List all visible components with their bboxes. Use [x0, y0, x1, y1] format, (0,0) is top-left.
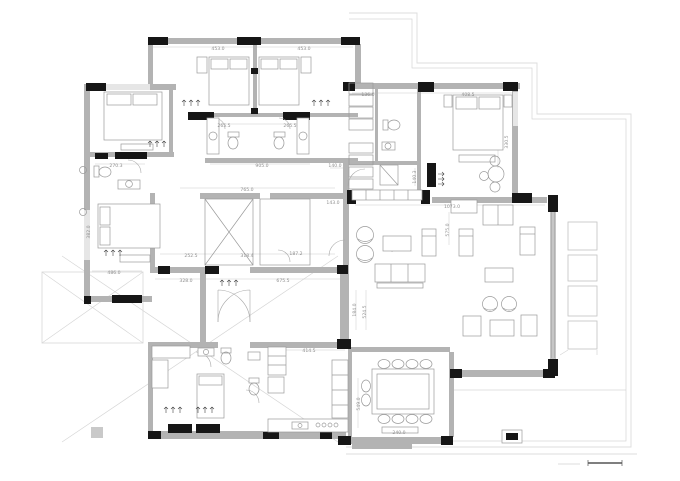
window-band [100, 84, 150, 90]
toilet-icon [228, 137, 238, 149]
dim-label: 486.0 [107, 270, 120, 276]
nightstand-icon [444, 95, 452, 107]
master-closet [349, 83, 373, 189]
dim-label: 330.5 [504, 135, 510, 148]
dim-label: 675.5 [276, 278, 289, 284]
dim-label: 265.5 [217, 123, 230, 129]
dim-label: 265.5 [283, 123, 296, 129]
toilet-icon [249, 383, 259, 395]
kitchen-tall-unit-icon [268, 347, 286, 375]
lounge-chair-icon [520, 227, 535, 255]
nightstand-icon [504, 95, 512, 107]
dim-label: 765.0 [240, 187, 253, 193]
lounge-chair-icon [459, 229, 473, 256]
chair-icon [378, 415, 390, 424]
chair-icon [392, 360, 404, 369]
dim-label: 136.0 [361, 92, 374, 98]
dim-label: 414.5 [302, 348, 315, 354]
dim-label: 187.2 [289, 251, 302, 257]
dim-label: 382.0 [86, 225, 92, 238]
lounge-chair-icon [463, 316, 481, 336]
bedrooms-bottom [152, 346, 260, 418]
dim-label: 318.4 [240, 253, 253, 259]
dining-room-furniture [362, 360, 435, 434]
dim-label: 143.0 [326, 200, 339, 206]
sofa-icon [375, 264, 425, 282]
bench-icon [121, 144, 153, 150]
dim-label: 453.0 [297, 46, 310, 52]
chair-icon [362, 394, 371, 406]
lounger-icon [568, 286, 597, 316]
dim-label: 524.5 [362, 305, 368, 318]
dim-label: 1073.0 [444, 204, 460, 210]
paving-block [91, 427, 103, 438]
toilet-icon [221, 352, 231, 364]
wardrobe-icon [196, 424, 220, 433]
dim-label: 453.0 [211, 46, 224, 52]
chair-icon [420, 415, 432, 424]
bench-icon [120, 255, 150, 262]
chair-icon [362, 380, 371, 392]
lounger-icon [568, 321, 597, 349]
dim-label: 240.0 [392, 430, 405, 436]
armchair-icon [483, 297, 498, 312]
tv-console [352, 190, 422, 200]
dim-label: 252.5 [184, 253, 197, 259]
vanity-icon [248, 352, 260, 360]
dim-label: 270.3 [109, 163, 122, 169]
bench-icon [459, 155, 495, 162]
dim-label: 140.0 [328, 163, 341, 169]
armchair-icon [357, 227, 374, 244]
kitchen-furniture [268, 347, 348, 432]
toilet-icon [274, 137, 284, 149]
chair-icon [406, 360, 418, 369]
fridge-icon [268, 377, 284, 393]
wardrobe-icon [168, 424, 192, 433]
scale-bar [558, 460, 622, 466]
round-table-icon [488, 166, 504, 182]
dim-label: 140.3 [412, 170, 418, 183]
coffee-table-icon [383, 236, 411, 251]
chair-icon [392, 415, 404, 424]
dim-label: 408.5 [461, 92, 474, 98]
toilet-icon [388, 120, 400, 130]
dim-label: 549.0 [356, 397, 362, 410]
kitchen-counter-icon [332, 360, 348, 418]
armchair-icon [357, 246, 374, 263]
armchair-icon [502, 297, 517, 312]
master-bedroom [444, 95, 512, 213]
bedroom-top-left [104, 92, 162, 150]
lounge-chair-icon [422, 229, 436, 256]
dim-label: 328.0 [179, 278, 192, 284]
dim-label: 575.0 [445, 223, 451, 236]
glass-wall [550, 211, 556, 359]
chair-icon [406, 415, 418, 424]
lounger-icon [568, 222, 597, 250]
master-bathroom [380, 120, 400, 185]
dim-label: 905.0 [255, 163, 268, 169]
chair-icon [490, 182, 500, 192]
dining-table-icon [372, 369, 434, 414]
terrace-loungers [560, 222, 597, 355]
coffee-table-icon [485, 268, 513, 282]
closet-icon [152, 346, 190, 358]
floor-plan-drawing: 453.0 453.0 136.0 408.5 265.5 265.5 905.… [0, 0, 680, 481]
desk-icon [152, 360, 168, 388]
lounge-chair-icon [521, 315, 537, 336]
chair-icon [480, 172, 489, 181]
nightstand-icon [301, 57, 311, 73]
chair-icon [378, 360, 390, 369]
nightstand-icon [197, 57, 207, 73]
dim-label: 184.0 [352, 303, 358, 316]
seat-icon [490, 320, 514, 336]
lounger-icon [568, 255, 597, 281]
bathroom-left [94, 166, 140, 189]
chair-icon [420, 360, 432, 369]
window-band [513, 92, 518, 126]
